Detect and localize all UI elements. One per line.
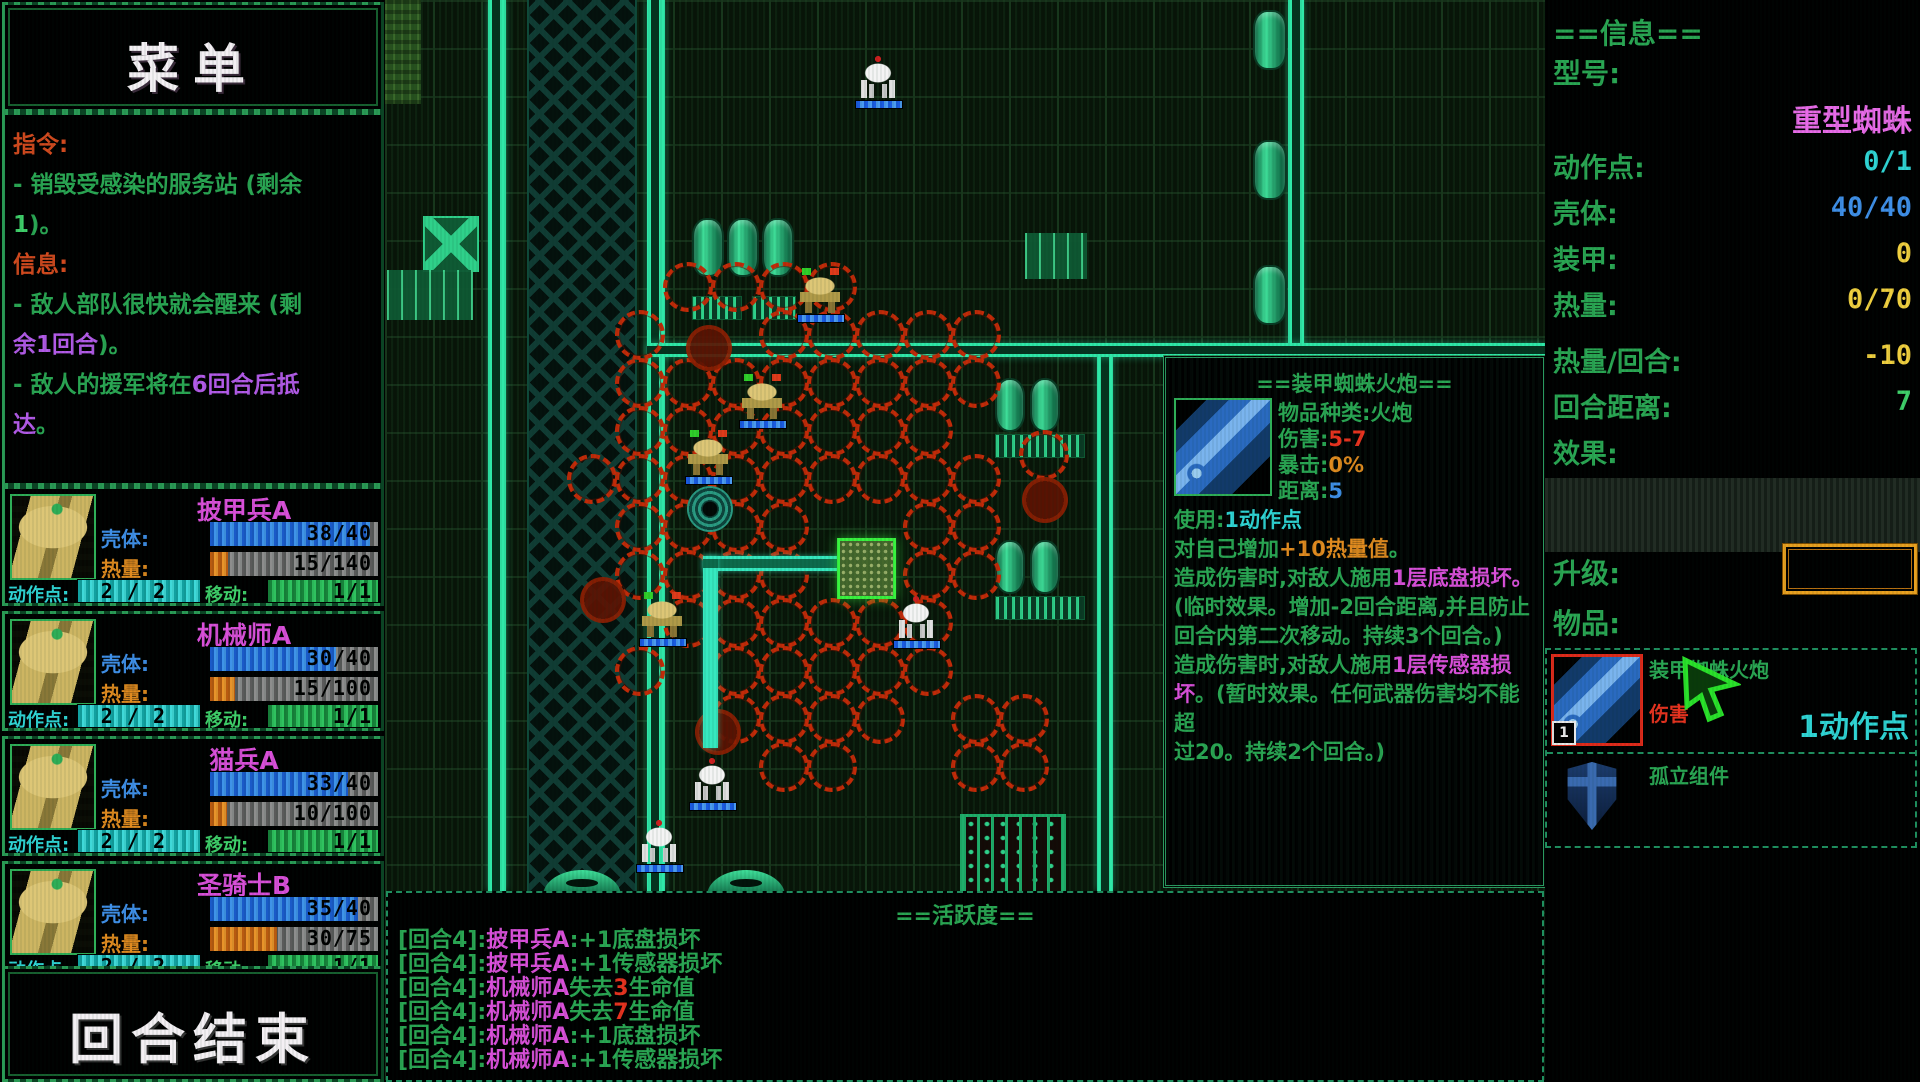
text-segment: 机械师A <box>486 976 569 1001</box>
unit-hp-bar <box>639 638 687 647</box>
attack-range-tile[interactable] <box>711 598 761 648</box>
mission-line: 1)。 <box>13 205 373 245</box>
attack-range-tile[interactable] <box>759 694 809 744</box>
upgrade-label: 升级: <box>1553 552 1620 592</box>
info-row-value: 0/1 <box>1863 146 1912 185</box>
attack-range-tile[interactable] <box>999 742 1049 792</box>
mouse-cursor-icon <box>1679 656 1741 728</box>
attack-range-tile[interactable] <box>951 358 1001 408</box>
map-unit-spider[interactable] <box>893 594 939 640</box>
unit-portrait <box>10 494 96 580</box>
attack-range-tile[interactable] <box>807 358 857 408</box>
text-segment: [回合4]: <box>398 928 486 953</box>
end-turn-label: 回合结束 <box>5 995 381 1074</box>
hull-label: 壳体: <box>101 773 149 802</box>
attack-range-tile[interactable] <box>903 550 953 600</box>
text-segment: 5-7 <box>1328 427 1366 451</box>
energy-conduit <box>1097 350 1113 891</box>
attack-range-tile[interactable] <box>951 694 1001 744</box>
text-segment: 披甲兵A <box>486 928 569 953</box>
text-segment: 1 <box>13 212 29 238</box>
text-segment: 生命值 <box>629 1000 695 1025</box>
text-segment: )。 <box>98 332 132 358</box>
text-segment: [回合4]: <box>398 1000 486 1025</box>
mission-line: 达。 <box>13 405 373 445</box>
tooltip-description: 使用:1动作点对自己增加+10热量值。造成伤害时,对敌人施用1层底盘损坏。(临时… <box>1174 506 1537 767</box>
attack-range-tile[interactable] <box>951 502 1001 552</box>
mission-panel: 指令:- 销毁受感染的服务站 (剩余1)。信息:- 敌人部队很快就会醒来 (剩余… <box>2 112 384 486</box>
hull-bar: 35/40 <box>209 896 379 922</box>
info-row-label: 效果: <box>1553 432 1618 471</box>
text-segment: 指令: <box>13 132 68 158</box>
text-segment: 对自己增加 <box>1174 537 1279 561</box>
menu-panel: 菜单 <box>2 2 384 112</box>
text-segment: 机械师A <box>486 1048 569 1073</box>
info-row-label: 热量/回合: <box>1553 340 1682 379</box>
light-floor-tiles <box>385 0 421 104</box>
tooltip-stats: 物品种类:火炮伤害:5-7暴击:0%距离:5 <box>1278 400 1412 504</box>
attack-range-tile[interactable] <box>807 454 857 504</box>
attack-range-tile[interactable] <box>711 262 761 312</box>
text-segment: 机械师A <box>486 1000 569 1025</box>
item-name: 孤立组件 <box>1649 760 1729 789</box>
text-segment: 1层传感器损 <box>1392 653 1512 677</box>
heat-bar: 15/100 <box>209 676 379 702</box>
shield-icon <box>1563 762 1621 830</box>
movement-path <box>703 556 845 571</box>
ap-bar: 2 / 2 <box>77 829 201 853</box>
activity-log-title: ==活跃度== <box>388 898 1542 930</box>
attack-range-tile[interactable] <box>615 502 665 552</box>
unit-panel[interactable]: 披甲兵A壳体:38/40热量:15/140动作点:2 / 2移动:1/1 <box>2 486 384 606</box>
items-box: 1 装甲蜘蛛火炮 伤害 1动作点 孤立组件 <box>1545 648 1917 848</box>
info-row: 热量:0/70 <box>1553 284 1912 323</box>
attack-range-tile[interactable] <box>1019 430 1069 480</box>
text-segment: - 敌人的援军将在 <box>13 372 192 398</box>
text-segment: 过20。持续2个回合。) <box>1174 740 1385 764</box>
attack-range-tile[interactable] <box>759 454 809 504</box>
text-segment: 回合内第二次移动。持续3个回合。) <box>1174 624 1503 648</box>
info-row-label: 装甲: <box>1553 238 1618 277</box>
info-row-value: 0 <box>1896 238 1912 277</box>
unit-portrait <box>10 619 96 705</box>
attack-range-tile[interactable] <box>855 454 905 504</box>
text-segment: 使用: <box>1174 508 1224 532</box>
unit-hp-bar <box>739 420 787 429</box>
attack-range-tile[interactable] <box>903 310 953 360</box>
text-segment: :+1底盘损坏 <box>570 1024 701 1049</box>
unit-hp-bar <box>855 100 903 109</box>
upgrade-slot[interactable] <box>1783 544 1917 594</box>
text-segment: 生命值 <box>629 976 695 1001</box>
info-row-label: 壳体: <box>1553 192 1618 231</box>
attack-range-tile[interactable] <box>567 454 617 504</box>
info-title: ==信息== <box>1553 12 1703 52</box>
info-row-label: 热量: <box>1553 284 1618 323</box>
mission-line: 余1回合)。 <box>13 325 373 365</box>
ap-label: 动作点: <box>8 831 69 857</box>
attack-range-tile[interactable] <box>807 406 857 456</box>
map-unit-vortex[interactable] <box>687 486 733 532</box>
log-line: [回合4]:机械师A:+1传感器损坏 <box>398 1049 722 1073</box>
map-object-grate <box>995 596 1085 620</box>
text-segment: +10热量值 <box>1279 537 1389 561</box>
mission-text: 指令:- 销毁受感染的服务站 (剩余1)。信息:- 敌人部队很快就会醒来 (剩余… <box>5 115 381 455</box>
selected-tile[interactable] <box>837 538 896 599</box>
attack-range-tile[interactable] <box>663 262 713 312</box>
item-slot-component[interactable] <box>1563 762 1621 830</box>
spent-range-tile <box>1022 477 1068 523</box>
text-segment: 物品种类:火炮 <box>1278 401 1412 425</box>
items-label: 物品: <box>1553 602 1620 642</box>
attack-range-tile[interactable] <box>711 646 761 696</box>
unit-hp-bar <box>636 864 684 873</box>
unit-hp-bar <box>685 476 733 485</box>
attack-range-tile[interactable] <box>903 406 953 456</box>
energy-conduit <box>488 0 506 891</box>
info-panel: ==信息== 型号: 重型蜘蛛 动作点:0/1壳体:40/40装甲:0热量:0/… <box>1545 0 1920 1080</box>
text-segment: 暴击: <box>1278 453 1328 477</box>
item-ap-cost: 1动作点 <box>1798 702 1909 746</box>
text-segment: 信息: <box>13 252 68 278</box>
attack-range-tile[interactable] <box>615 406 665 456</box>
attack-range-tile[interactable] <box>999 694 1049 744</box>
unit-panel[interactable]: 机械师A壳体:30/40热量:15/100动作点:2 / 2移动:1/1 <box>2 611 384 731</box>
weapon-tooltip: ==装甲蜘蛛火炮== 物品种类:火炮伤害:5-7暴击:0%距离:5 使用:1动作… <box>1163 355 1546 888</box>
text-segment: 。(暂时效果。任何武器伤害均不能超 <box>1174 682 1520 735</box>
unit-panel[interactable]: 猫兵A壳体:33/40热量:10/100动作点:2 / 2移动:1/1 <box>2 736 384 856</box>
effects-bar <box>1545 478 1920 552</box>
text-segment: [回合4]: <box>398 1024 486 1049</box>
map-unit-spider[interactable] <box>689 756 735 802</box>
text-segment: 5 <box>1328 479 1343 503</box>
attack-range-tile[interactable] <box>615 310 665 360</box>
log-line: [回合4]:机械师A:+1底盘损坏 <box>398 1025 722 1049</box>
text-segment: )。 <box>29 212 63 238</box>
mission-line: - 销毁受感染的服务站 (剩余 <box>13 165 373 205</box>
text-segment: [回合4]: <box>398 952 486 977</box>
move-label: 移动: <box>205 581 248 607</box>
attack-range-tile[interactable] <box>903 454 953 504</box>
cannon-icon <box>1174 398 1272 496</box>
map-object-pod <box>1253 265 1287 325</box>
text-segment: :+1传感器损坏 <box>570 1048 723 1073</box>
log-line: [回合4]:机械师A失去7生命值 <box>398 1001 722 1025</box>
attack-range-tile[interactable] <box>615 358 665 408</box>
map-object-pod <box>1030 378 1060 432</box>
attack-range-tile[interactable] <box>615 454 665 504</box>
info-row: 动作点:0/1 <box>1553 146 1912 185</box>
attack-range-tile[interactable] <box>855 406 905 456</box>
mech-sprite <box>12 621 94 703</box>
attack-range-tile[interactable] <box>759 646 809 696</box>
mission-line: - 敌人的援军将在6回合后抵 <box>13 365 373 405</box>
move-bar: 1/1 <box>267 704 379 728</box>
map-object-cratex <box>423 216 479 272</box>
heat-bar: 10/100 <box>209 801 379 827</box>
mission-line: - 敌人部队很快就会醒来 (剩 <box>13 285 373 325</box>
info-row-value: -10 <box>1863 340 1912 379</box>
attack-range-tile[interactable] <box>759 598 809 648</box>
mission-line: 信息: <box>13 245 373 285</box>
info-row-value: 0/70 <box>1847 284 1912 323</box>
mech-sprite <box>12 496 94 578</box>
text-segment: 造成伤害时,对敌人施用 <box>1174 566 1392 590</box>
spent-range-tile <box>580 577 626 623</box>
map-unit-mech[interactable] <box>739 374 785 420</box>
text-segment: 1层底盘损坏。 <box>1392 566 1533 590</box>
model-label: 型号: <box>1553 52 1620 92</box>
text-segment: 距离: <box>1278 479 1328 503</box>
heat-label: 热量: <box>101 553 149 582</box>
energy-conduit <box>1288 0 1304 350</box>
hull-label: 壳体: <box>101 523 149 552</box>
map-unit-spider[interactable] <box>636 818 682 864</box>
unit-hp-bar <box>689 802 737 811</box>
attack-range-tile[interactable] <box>951 454 1001 504</box>
text-segment: (临时效果。增加-2回合距离,并且防止 <box>1174 595 1530 619</box>
move-label: 移动: <box>205 831 248 857</box>
info-row-value: 40/40 <box>1831 192 1912 231</box>
text-segment: 披甲兵A <box>486 952 569 977</box>
ap-label: 动作点: <box>8 706 69 732</box>
attack-range-tile[interactable] <box>903 502 953 552</box>
heat-label: 热量: <box>101 928 149 957</box>
model-value: 重型蜘蛛 <box>1792 96 1912 140</box>
map-object-pod <box>1253 10 1287 70</box>
text-segment: 7 <box>613 1000 628 1025</box>
text-segment: 余1回合 <box>13 332 98 358</box>
unit-portrait <box>10 744 96 830</box>
mech-sprite <box>12 746 94 828</box>
text-segment: 3 <box>613 976 628 1001</box>
mech-sprite <box>12 871 94 953</box>
text-segment: 。 <box>1389 537 1410 561</box>
attack-range-tile[interactable] <box>951 742 1001 792</box>
attack-range-tile[interactable] <box>855 358 905 408</box>
info-row: 回合距离:7 <box>1553 386 1912 425</box>
attack-range-tile[interactable] <box>855 646 905 696</box>
attack-range-tile[interactable] <box>807 694 857 744</box>
attack-range-tile[interactable] <box>807 742 857 792</box>
log-line: [回合4]:机械师A失去3生命值 <box>398 977 722 1001</box>
hull-bar: 38/40 <box>209 521 379 547</box>
map-unit-mech[interactable] <box>797 268 843 314</box>
hull-bar: 30/40 <box>209 646 379 672</box>
spent-range-tile <box>695 709 741 755</box>
end-turn-button[interactable]: 回合结束 <box>2 966 384 1082</box>
activity-log: ==活跃度== [回合4]:披甲兵A:+1底盘损坏[回合4]:披甲兵A:+1传感… <box>386 891 1544 1082</box>
map-object-crates <box>387 270 473 320</box>
log-line: [回合4]:披甲兵A:+1底盘损坏 <box>398 929 722 953</box>
attack-range-tile[interactable] <box>615 646 665 696</box>
attack-range-tile[interactable] <box>759 742 809 792</box>
text-segment: 机械师A <box>486 1024 569 1049</box>
menu-title: 菜单 <box>5 27 381 102</box>
spent-range-tile <box>686 325 732 371</box>
tooltip-title: ==装甲蜘蛛火炮== <box>1166 368 1543 398</box>
text-segment: [回合4]: <box>398 976 486 1001</box>
mission-line: 指令: <box>13 125 373 165</box>
item-slot-cannon[interactable]: 1 <box>1551 654 1643 746</box>
info-row-label: 动作点: <box>1553 146 1645 185</box>
unit-portrait <box>10 869 96 955</box>
info-row: 壳体:40/40 <box>1553 192 1912 231</box>
attack-range-tile[interactable] <box>807 598 857 648</box>
move-bar: 1/1 <box>267 829 379 853</box>
map-object-pod <box>1030 540 1060 594</box>
heat-bar: 15/140 <box>209 551 379 577</box>
text-segment: 失去 <box>569 976 613 1001</box>
unit-hp-bar <box>893 640 941 649</box>
text-segment: :+1传感器损坏 <box>570 952 723 977</box>
activity-log-lines: [回合4]:披甲兵A:+1底盘损坏[回合4]:披甲兵A:+1传感器损坏[回合4]… <box>398 929 722 1073</box>
hull-label: 壳体: <box>101 648 149 677</box>
text-segment: 6回合后抵 <box>192 372 300 398</box>
attack-range-tile[interactable] <box>855 310 905 360</box>
ap-bar: 2 / 2 <box>77 704 201 728</box>
heat-label: 热量: <box>101 678 149 707</box>
text-segment: 造成伤害时,对敌人施用 <box>1174 653 1392 677</box>
text-segment: 失去 <box>569 1000 613 1025</box>
attack-range-tile[interactable] <box>855 694 905 744</box>
attack-range-tile[interactable] <box>903 646 953 696</box>
hull-bar: 33/40 <box>209 771 379 797</box>
map-unit-mech[interactable] <box>639 592 685 638</box>
movement-path <box>703 556 718 748</box>
heat-bar: 30/75 <box>209 926 379 952</box>
text-segment: 1动作点 <box>1224 508 1302 532</box>
map-object-crates <box>1025 233 1087 279</box>
unit-panel[interactable]: 圣骑士B壳体:35/40热量:30/75动作点:2 / 2移动:1/1 <box>2 861 384 981</box>
unit-list: 披甲兵A壳体:38/40热量:15/140动作点:2 / 2移动:1/1机械师A… <box>2 486 378 986</box>
attack-range-tile[interactable] <box>807 646 857 696</box>
attack-range-tile[interactable] <box>951 550 1001 600</box>
ap-label: 动作点: <box>8 581 69 607</box>
unit-hp-bar <box>797 314 845 323</box>
attack-range-tile[interactable] <box>903 358 953 408</box>
info-row: 热量/回合:-10 <box>1553 340 1912 379</box>
item-separator <box>1547 752 1915 754</box>
info-row: 效果: <box>1553 432 1912 471</box>
text-segment: - 销毁受感染的服务站 (剩余 <box>13 172 302 198</box>
info-row: 装甲:0 <box>1553 238 1912 277</box>
text-segment: 达 <box>13 412 36 438</box>
text-segment: 伤害: <box>1278 427 1328 451</box>
map-unit-spider[interactable] <box>855 54 901 100</box>
hull-label: 壳体: <box>101 898 149 927</box>
attack-range-tile[interactable] <box>951 310 1001 360</box>
map-object-pod <box>1253 140 1287 200</box>
text-segment: :+1底盘损坏 <box>570 928 701 953</box>
text-segment: [回合4]: <box>398 1048 486 1073</box>
text-segment: 0% <box>1328 453 1364 477</box>
text-segment: 。 <box>36 412 59 438</box>
ap-bar: 2 / 2 <box>77 579 201 603</box>
map-object-fence <box>960 814 1066 896</box>
log-line: [回合4]:披甲兵A:+1传感器损坏 <box>398 953 722 977</box>
heat-label: 热量: <box>101 803 149 832</box>
attack-range-tile[interactable] <box>759 502 809 552</box>
map-unit-mech[interactable] <box>685 430 731 476</box>
item-count-badge: 1 <box>1552 721 1576 745</box>
info-row-label: 回合距离: <box>1553 386 1672 425</box>
text-segment: - 敌人部队很快就会醒来 (剩 <box>13 292 302 318</box>
info-row-value: 7 <box>1896 386 1912 425</box>
move-label: 移动: <box>205 706 248 732</box>
text-segment: 坏 <box>1174 682 1195 706</box>
move-bar: 1/1 <box>267 579 379 603</box>
